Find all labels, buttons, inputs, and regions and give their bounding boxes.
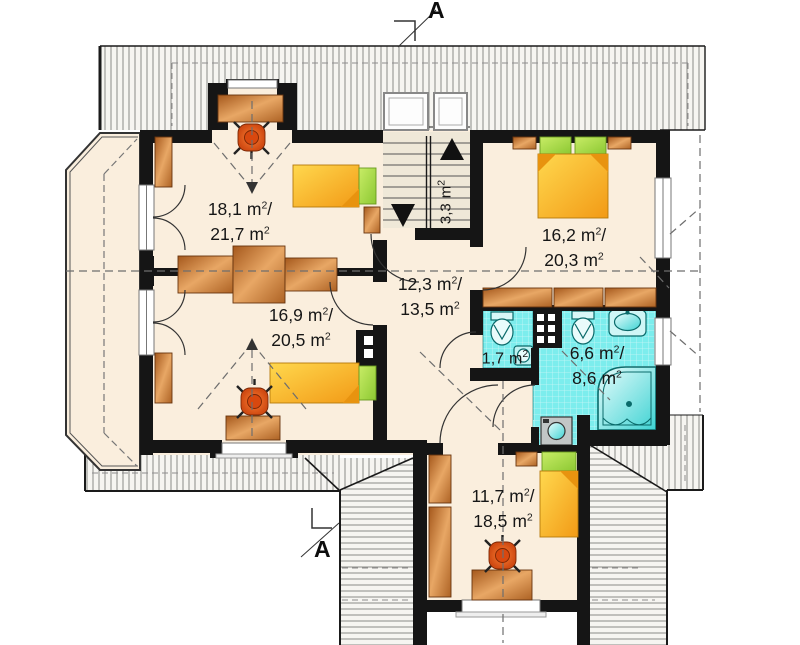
dormer-top-window: [228, 80, 277, 88]
wall-wing-east: [577, 415, 590, 645]
wardrobe: [605, 288, 656, 307]
label-line: 16,2m2/: [542, 221, 606, 246]
area-label-wc: 1,7m2: [482, 344, 528, 369]
chimney-flue: [537, 325, 544, 332]
section-mark-bottom: [312, 508, 332, 528]
chimney-flue: [364, 336, 373, 345]
bed-single: [540, 452, 578, 537]
wall-segment: [292, 130, 383, 143]
label-line: 20,5m2: [269, 326, 333, 351]
wall-segment: [470, 310, 483, 335]
chimney-flue: [537, 314, 544, 321]
balcony-floor: [66, 133, 140, 470]
wall-wing-west: [413, 440, 427, 645]
label-line: 21,7m2: [208, 220, 272, 245]
wall-segment: [298, 440, 415, 453]
label-line: 3,3m2: [432, 180, 457, 224]
nightstand: [608, 137, 631, 149]
wall-segment: [427, 600, 462, 612]
wall-segment: [478, 130, 670, 143]
label-line: 20,3m2: [542, 246, 606, 271]
area-label-room-lower-left: 16,9m2/ 20,5m2: [269, 301, 333, 351]
floor-hall-south: [483, 381, 533, 443]
desk: [472, 570, 532, 600]
area-label-bathroom: 6,6m2/ 8,6m2: [570, 339, 625, 389]
area-label-wing-room: 11,7m2/ 18,5m2: [471, 482, 534, 532]
wardrobe: [483, 288, 552, 307]
wall-wc-south: [470, 368, 537, 381]
section-label-bottom: A: [314, 536, 331, 562]
wall-segment: [140, 130, 153, 185]
balcony-door-frame: [139, 185, 154, 250]
wall-segment: [427, 443, 443, 455]
wing-bottom-window: [456, 600, 546, 617]
bath-sink: [609, 310, 646, 336]
label-line: 18,1m2/: [208, 195, 272, 220]
right-window-bathroom: [655, 318, 671, 365]
label-line: 18,5m2: [471, 507, 534, 532]
wall-segment: [470, 228, 483, 247]
floor-plan-canvas: A A 18,1m2/ 21,7m2 16,2m2/ 20,3m2 12,3m2…: [0, 0, 800, 645]
desk: [218, 95, 283, 122]
wardrobe: [155, 353, 172, 403]
wall-segment: [373, 240, 387, 282]
floor-plan-drawing: A A: [0, 0, 800, 645]
chimney-flue: [537, 336, 544, 343]
wall-segment: [470, 130, 483, 228]
bed-single: [293, 165, 376, 207]
wardrobe: [429, 507, 451, 597]
label-line: 12,3m2/: [398, 270, 462, 295]
chimney-block: [356, 330, 387, 366]
label-line: 1,7m2: [482, 344, 528, 369]
chimney-flue: [364, 349, 373, 358]
nightstand: [364, 207, 380, 233]
right-window-bedroom: [655, 178, 671, 258]
shelf-unit: [285, 258, 337, 291]
wall-bath-west: [531, 427, 539, 445]
desk: [226, 416, 280, 440]
area-label-bedroom-right: 16,2m2/ 20,3m2: [542, 221, 606, 271]
wall-segment: [540, 600, 577, 612]
shelf-unit: [178, 256, 233, 293]
label-line: 13,5m2: [398, 295, 462, 320]
area-label-room-upper-left: 18,1m2/ 21,7m2: [208, 195, 272, 245]
washing-machine: [541, 417, 572, 445]
chimney-flue: [548, 314, 555, 321]
section-mark-top: [394, 21, 415, 41]
area-label-hall: 12,3m2/ 13,5m2: [398, 270, 462, 320]
dormer-bottom-window: [216, 443, 292, 458]
bed-single: [270, 363, 376, 403]
wardrobe: [155, 137, 172, 187]
balcony-door-frame: [139, 290, 154, 355]
wardrobe: [429, 455, 451, 503]
label-line: 8,6m2: [570, 364, 625, 389]
label-line: 16,9m2/: [269, 301, 333, 326]
wall-bath-south: [590, 430, 667, 446]
shelf-unit: [233, 246, 285, 303]
chimney-flue: [548, 336, 555, 343]
section-label-top: A: [428, 0, 445, 23]
nightstand: [513, 137, 536, 149]
wall-bath-west: [531, 348, 539, 385]
label-line: 6,6m2/: [570, 339, 625, 364]
wall-segment: [470, 290, 483, 310]
skylight: [384, 93, 428, 130]
skylight: [434, 93, 467, 130]
chimney-flue: [548, 325, 555, 332]
eaves-diagonal: [670, 331, 700, 357]
wc-toilet: [491, 312, 513, 345]
wardrobe: [554, 288, 603, 307]
eaves-diagonal: [670, 208, 700, 234]
label-line: 11,7m2/: [471, 482, 534, 507]
wall-segment: [140, 440, 210, 453]
shelf: [516, 452, 537, 466]
area-label-staircase: 3,3m2: [432, 180, 457, 224]
